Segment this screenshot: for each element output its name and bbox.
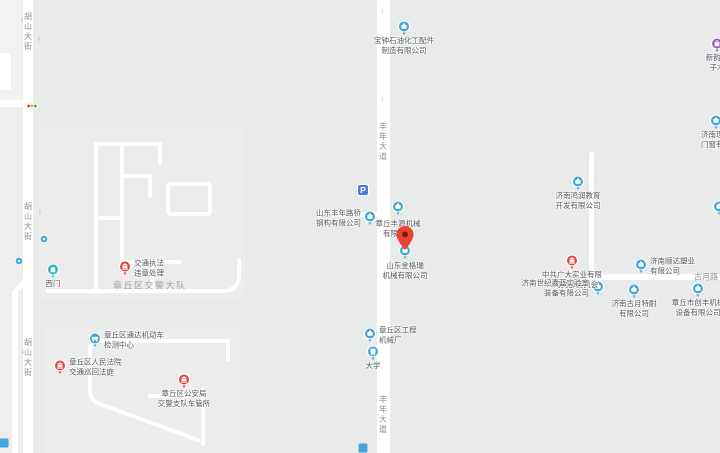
- service-road: [12, 290, 18, 453]
- hushan-street-top-label: 胡山大街: [24, 12, 33, 52]
- guyue-tenai-icon[interactable]: [628, 283, 641, 299]
- edge-poi-icon[interactable]: [713, 200, 720, 216]
- hongrun-education-icon[interactable]: [572, 175, 585, 191]
- small-dot-1-icon: [40, 235, 49, 244]
- baozhong-petro-parts-icon[interactable]: [398, 20, 411, 36]
- east-vertical-road: [589, 152, 594, 280]
- jialan-lab-equipment-label[interactable]: 济南世纪嘉蓝实验室装备有限公司: [522, 279, 590, 298]
- partial-bottom-center-icon: [359, 444, 368, 453]
- west-gate-label[interactable]: 西门: [46, 279, 61, 289]
- parking-icon[interactable]: P: [357, 184, 369, 196]
- traffic-enforcement-icon[interactable]: [119, 260, 132, 276]
- one-way-arrow-4: ↓: [21, 349, 25, 356]
- one-way-arrow-3: ↑: [38, 209, 42, 216]
- fengnian-avenue-top-label: 丰年大道: [379, 122, 388, 162]
- zhonggong-party-branch-icon[interactable]: [566, 254, 579, 270]
- small-dot-2-icon: [15, 257, 24, 266]
- one-way-arrow-2: ↑: [37, 37, 41, 44]
- xinyun-edge-icon[interactable]: [711, 37, 720, 53]
- hushan-street-bottom-label: 胡山大街: [24, 338, 33, 378]
- tongda-vehicle-inspection-label[interactable]: 章丘区通达机动车检测中心: [104, 331, 164, 350]
- lixiang-doors-icon[interactable]: [710, 114, 720, 130]
- block-left: [0, 107, 22, 453]
- west-gate-icon[interactable]: [47, 263, 60, 279]
- one-way-arrow-7: ↑: [379, 425, 383, 432]
- west-side-street: [0, 100, 23, 107]
- partial-bottom-left-icon: [0, 439, 9, 448]
- traffic-light-icon: [25, 103, 39, 110]
- jingerui-machinery-label[interactable]: 山东金格瑞机械有限公司: [383, 261, 428, 280]
- hongrun-education-label[interactable]: 济南鸿润教育开发有限公司: [556, 191, 601, 210]
- gongcheng-machinery-factory-icon[interactable]: [364, 327, 377, 343]
- baozhong-petro-parts-label[interactable]: 宝钟石油化工配件制造有限公司: [374, 36, 434, 55]
- guyue-tenai-label[interactable]: 济南古月特耐有限公司: [612, 299, 657, 318]
- svg-text:P: P: [360, 185, 366, 195]
- fengnian-steel-label[interactable]: 山东丰年路桥钢构有限公司: [316, 209, 361, 228]
- traffic-enforcement-label[interactable]: 交通执法违章处理: [134, 259, 164, 278]
- gongcheng-machinery-factory-label[interactable]: 章丘区工程机械厂: [379, 326, 417, 345]
- vehicle-admin-office-label[interactable]: 章丘区公安局交警支队车管所: [158, 389, 211, 408]
- shunda-plastics-label[interactable]: 济南顺达塑业有限公司: [650, 257, 695, 276]
- building-top-left: [0, 53, 11, 90]
- one-way-arrow-1: ↓: [20, 17, 24, 24]
- vehicle-admin-office-icon[interactable]: [178, 373, 191, 389]
- hushan-street-mid-label: 胡山大街: [24, 202, 33, 242]
- guyue-road-label: 古月路: [694, 273, 718, 282]
- daxue-bus-stop-label[interactable]: 大学: [366, 361, 381, 371]
- one-way-arrow-5: ↓: [380, 8, 384, 15]
- fengyuan-machinery-icon[interactable]: [392, 200, 405, 216]
- chuangfeng-machinery-label[interactable]: 章丘市创丰机械设备有限公司: [672, 298, 720, 317]
- xinyun-edge-label[interactable]: 新韵电子木: [706, 53, 720, 72]
- court-traffic-circuit-label[interactable]: 章丘区人民法院交通巡回法庭: [69, 358, 122, 377]
- tongda-vehicle-inspection-icon[interactable]: [89, 332, 102, 348]
- lixiang-doors-label[interactable]: 济南理想门窗有限: [701, 130, 720, 149]
- daxue-bus-stop-icon[interactable]: [367, 345, 380, 361]
- chuangfeng-machinery-icon[interactable]: [692, 282, 705, 298]
- map-canvas[interactable]: 胡山大街胡山大街胡山大街丰年大道丰年大道古月路章丘区交警大队↓↑↑↓↓↓↑ 宝钟…: [0, 0, 720, 453]
- one-way-arrow-6: ↓: [380, 96, 384, 103]
- destination-pin-pin[interactable]: [397, 226, 414, 250]
- jiaojing-compound-label: 章丘区交警大队: [113, 282, 187, 291]
- court-traffic-circuit-icon[interactable]: [54, 359, 67, 375]
- shunda-plastics-icon[interactable]: [635, 258, 648, 274]
